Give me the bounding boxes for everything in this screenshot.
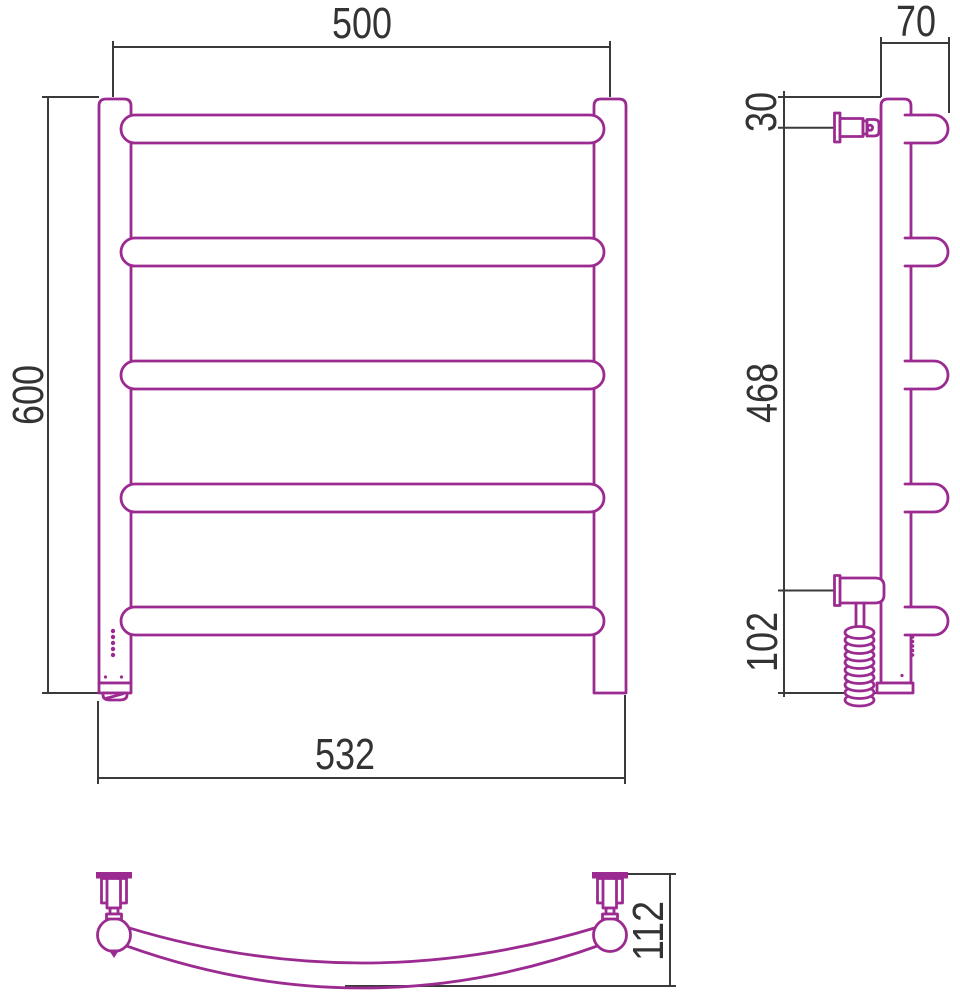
element-box [839, 578, 884, 603]
side-tube [881, 99, 911, 683]
left-collar [107, 914, 122, 919]
side-tube-foot [877, 683, 913, 693]
left-drain-tip [109, 950, 120, 959]
dim-front-600: 600 [4, 97, 99, 693]
arc-outer [121, 944, 603, 988]
technical-drawing-page: 500 600 532 70 30 468 102 112 [0, 0, 960, 1000]
right-collar [603, 914, 618, 919]
arc-inner [126, 927, 598, 963]
dim-label-500: 500 [332, 0, 392, 48]
front-left-tube [99, 99, 131, 683]
towel-rail-drawing: 500 600 532 70 30 468 102 112 [0, 0, 960, 1000]
front-right-tube [594, 99, 626, 693]
power-cable-coil [845, 627, 874, 707]
element-housing [99, 683, 131, 693]
front-bars [121, 115, 604, 635]
valve-knob-hole [867, 125, 872, 130]
right-wall-bracket [592, 872, 628, 952]
left-stem-inner [107, 879, 121, 909]
bar-3 [121, 361, 604, 389]
dim-label-468: 468 [738, 363, 787, 423]
dim-side-chain: 30 468 102 [737, 91, 881, 697]
plan-view [96, 872, 628, 988]
left-ball-joint [98, 919, 131, 952]
element-box-flange [835, 576, 841, 606]
bar-4 [121, 484, 604, 512]
dim-label-532: 532 [315, 730, 375, 779]
bar-2 [121, 238, 604, 266]
dim-front-500: 500 [113, 0, 610, 97]
dim-side-70: 70 [881, 0, 949, 113]
bar-1 [121, 115, 604, 143]
dim-label-30: 30 [737, 92, 786, 132]
dim-label-112: 112 [624, 901, 673, 961]
side-screw-dot [900, 674, 903, 677]
air-vent-valve [835, 113, 880, 142]
curved-bar [121, 927, 603, 988]
dim-label-70: 70 [896, 0, 936, 46]
dim-front-532: 532 [98, 695, 625, 784]
bar-5 [121, 607, 604, 635]
right-stem-inner [603, 879, 617, 909]
dim-label-600: 600 [4, 365, 53, 425]
dim-label-102: 102 [738, 612, 787, 672]
right-ball-joint [594, 919, 627, 952]
side-view [835, 99, 949, 706]
valve-body [840, 119, 863, 137]
left-wall-bracket [96, 872, 132, 958]
front-view [99, 99, 626, 700]
cable-stem [856, 603, 864, 628]
